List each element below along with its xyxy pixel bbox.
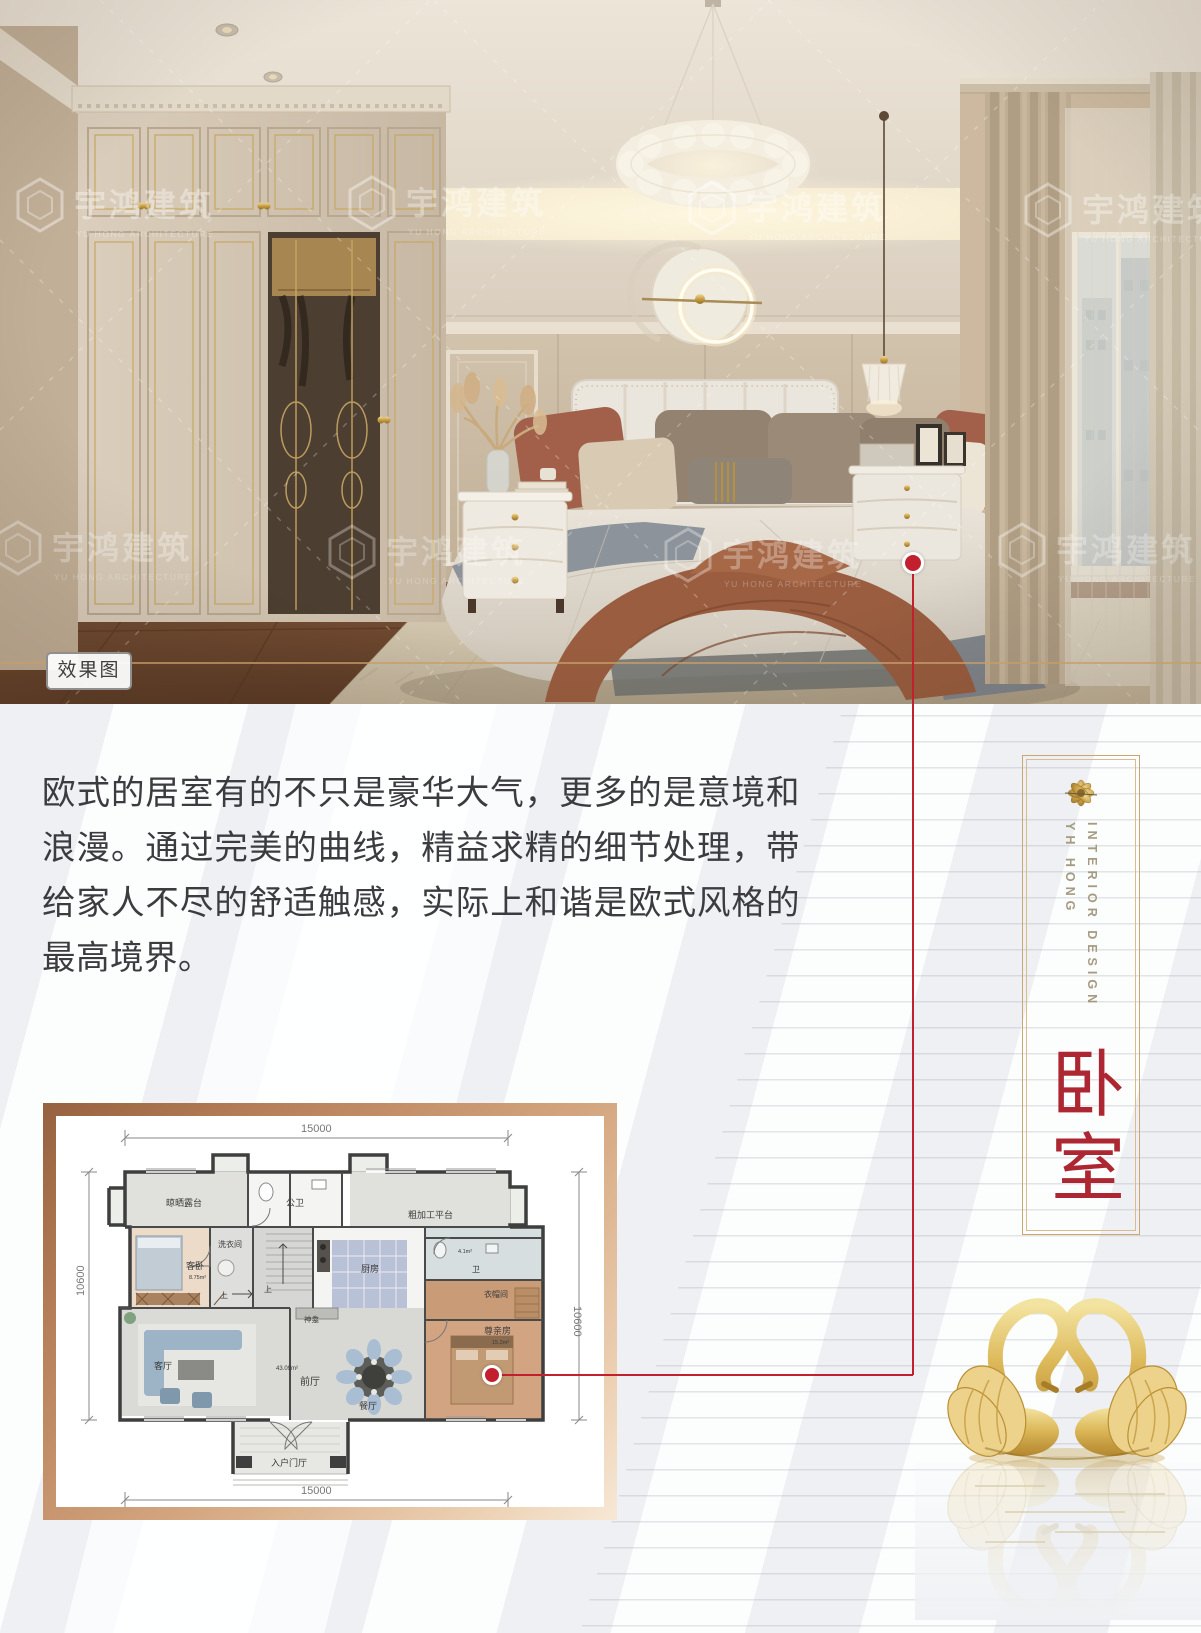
side-panel-line1: INTERIOR DESIGN (1085, 822, 1099, 1008)
dim-right: 10600 (571, 1306, 583, 1337)
label-cloakroom: 衣帽间 (484, 1289, 508, 1299)
floor-plan: 15000 15000 10600 10600 (56, 1116, 604, 1507)
label-kitchen: 厨房 (361, 1263, 379, 1274)
callout-line-horizontal (492, 1374, 913, 1376)
poster-page: 宇鸿建筑 YU HONG ARCHITECTURE (0, 0, 1201, 1633)
section-side-panel: INTERIOR DESIGN YH HONG 卧室 (1022, 755, 1140, 1235)
callout-line-vertical (912, 563, 914, 1375)
stairs-up-label: 上 (220, 1291, 228, 1300)
label-living: 客厅 (154, 1360, 172, 1371)
stairs-up-label-2: 上 (264, 1285, 272, 1294)
dim-top: 15000 (301, 1123, 332, 1135)
label-guest-area: 8.75m² (189, 1275, 206, 1281)
label-shrine: 神龛 (304, 1314, 319, 1324)
bedroom-render-photo: 宇鸿建筑 YU HONG ARCHITECTURE (0, 0, 1201, 704)
label-terrace: 晾晒露台 (166, 1197, 202, 1208)
label-elder-area: 15.2m² (492, 1340, 509, 1346)
label-bath-area: 4.1m² (458, 1249, 472, 1255)
label-guest-bedroom: 客卧 (186, 1260, 204, 1271)
label-front-hall: 前厅 (300, 1375, 320, 1388)
side-panel-line2: YH HONG (1063, 822, 1077, 915)
label-platform: 粗加工平台 (408, 1209, 453, 1220)
description-paragraph: 欧式的居室有的不只是豪华大气，更多的是意境和浪漫。通过完美的曲线，精益求精的细节… (42, 766, 800, 986)
floor-plan-drawing: 15000 15000 10600 10600 (56, 1116, 604, 1507)
floor-plan-frame: 15000 15000 10600 10600 (43, 1103, 617, 1520)
label-front-hall-area: 43.09m² (276, 1366, 298, 1372)
label-bath: 卫 (472, 1265, 480, 1274)
gold-swans-ornament (915, 1280, 1201, 1620)
decorative-tan-line (0, 662, 1201, 664)
section-title-bedroom: 卧室 (1028, 1045, 1135, 1213)
dim-left: 10600 (75, 1265, 87, 1296)
callout-dot-plan (482, 1365, 502, 1385)
label-dining: 餐厅 (359, 1400, 377, 1411)
label-laundry: 洗衣间 (218, 1239, 242, 1249)
label-public-wc: 公卫 (286, 1198, 304, 1208)
render-tag: 效果图 (46, 652, 132, 690)
side-panel-english: INTERIOR DESIGN YH HONG (1059, 822, 1103, 1027)
callout-dot-photo (902, 552, 924, 574)
bedroom-render-illustration: 宇鸿建筑 YU HONG ARCHITECTURE (0, 0, 1201, 704)
label-entrance: 入户门厅 (271, 1457, 307, 1468)
label-elder: 尊亲房 (484, 1325, 511, 1336)
gold-flower-icon (1064, 776, 1098, 810)
dim-bottom: 15000 (301, 1485, 332, 1497)
